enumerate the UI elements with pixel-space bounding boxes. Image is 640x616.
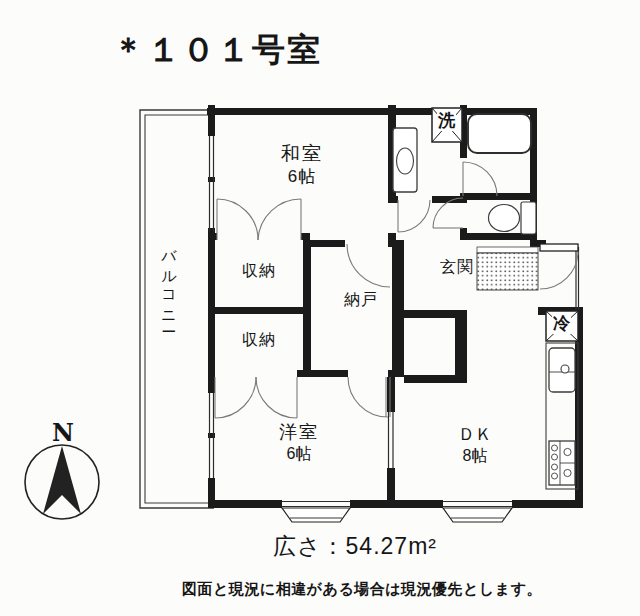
room-label-entrance: 玄関	[423, 257, 491, 278]
toilet-icon	[489, 202, 537, 234]
north-arrow-icon	[43, 446, 81, 514]
stove-icon	[549, 441, 575, 485]
room-size-japanese-room: 6帖	[258, 165, 346, 188]
room-label-balcony: バルコニー	[159, 239, 178, 354]
room-label-western-room: 洋室	[264, 420, 334, 444]
room-label-storage-upper: 収納	[226, 261, 292, 282]
room-size-western-room: 6帖	[264, 444, 334, 465]
room-size-dining-kitchen: 8帖	[442, 446, 508, 467]
room-label-dining-kitchen: ＤＫ	[442, 423, 508, 446]
page-title: ＊１０１号室	[112, 28, 322, 73]
kitchen-sink-icon	[549, 348, 575, 392]
floor-plan-page: ＊１０１号室 和室 6帖 収納 収納 納戸 玄関 洋室 6帖 ＤＫ 8帖 洗 冷…	[0, 0, 640, 616]
entrance-step-west	[282, 508, 350, 522]
washbasin-icon	[393, 128, 417, 192]
fixture-label-refrigerator: 冷	[552, 315, 571, 334]
front-door-leaf	[540, 244, 578, 251]
compass	[25, 445, 99, 519]
floor-plan-drawing	[0, 0, 640, 616]
entrance-step-east	[443, 508, 512, 522]
room-label-japanese-room: 和室	[258, 141, 346, 167]
floor-area-text: 広さ：54.27m²	[155, 531, 555, 562]
disclaimer-text: 図面と現況に相違がある場合は現況優先とします。	[82, 580, 640, 599]
room-label-storage-lower: 収納	[226, 330, 292, 351]
bathtub-icon	[468, 114, 531, 153]
fixture-label-washing-machine: 洗	[437, 112, 456, 131]
compass-north-label: N	[48, 418, 78, 447]
room-label-storeroom: 納戸	[325, 290, 397, 311]
